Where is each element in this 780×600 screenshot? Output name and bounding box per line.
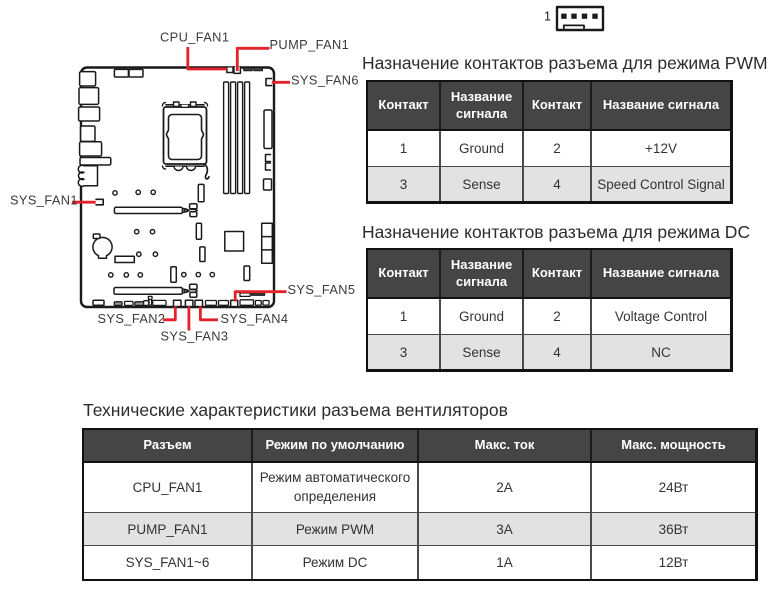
- svg-text:CPU_FAN1: CPU_FAN1: [160, 30, 229, 45]
- svg-text:1: 1: [544, 10, 551, 24]
- svg-text:SYS_FAN1: SYS_FAN1: [10, 193, 78, 208]
- svg-text:SYS_FAN2: SYS_FAN2: [98, 311, 166, 326]
- svg-text:SYS_FAN5: SYS_FAN5: [288, 282, 356, 297]
- svg-text:PUMP_FAN1: PUMP_FAN1: [270, 37, 350, 52]
- svg-text:SYS_FAN4: SYS_FAN4: [221, 311, 289, 326]
- svg-text:SYS_FAN6: SYS_FAN6: [291, 73, 359, 88]
- svg-text:SYS_FAN3: SYS_FAN3: [161, 329, 229, 344]
